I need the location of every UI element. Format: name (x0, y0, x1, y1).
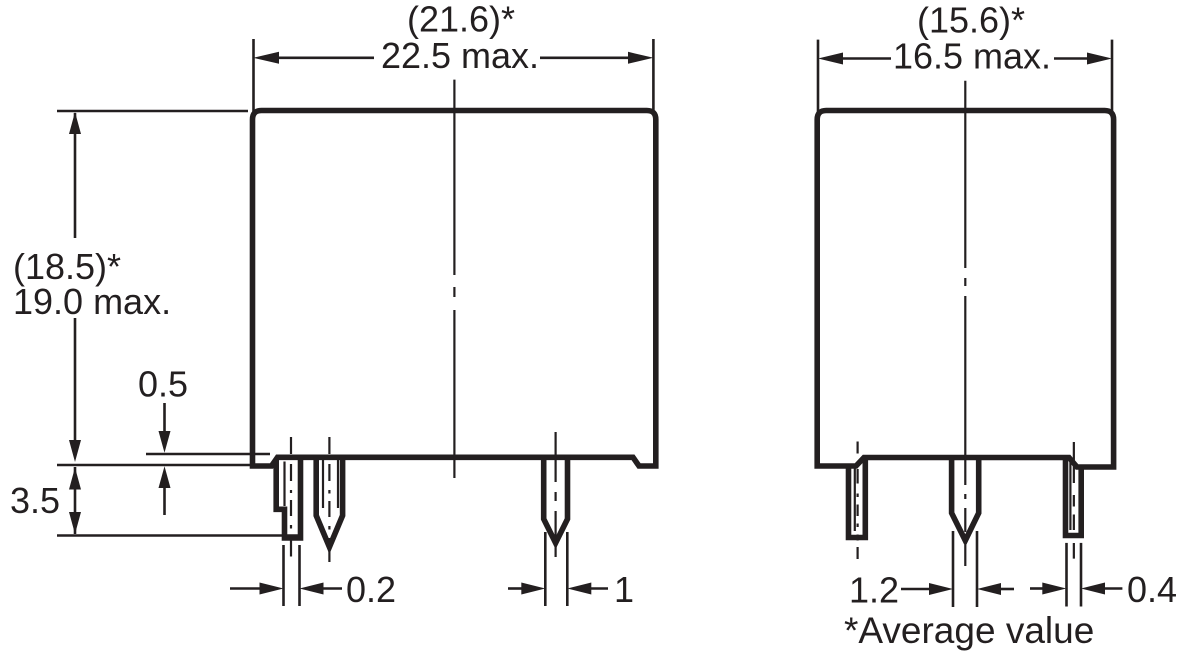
svg-text:1.2: 1.2 (849, 570, 899, 611)
svg-text:22.5 max.: 22.5 max. (381, 35, 539, 76)
svg-text:3.5: 3.5 (10, 480, 60, 521)
svg-text:(21.6)*: (21.6)* (407, 0, 515, 40)
svg-text:(15.6)*: (15.6)* (917, 0, 1025, 41)
svg-text:0.4: 0.4 (1127, 569, 1177, 610)
svg-text:19.0 max.: 19.0 max. (13, 281, 171, 322)
svg-text:16.5 max.: 16.5 max. (893, 36, 1051, 77)
svg-text:1: 1 (614, 569, 634, 610)
svg-text:0.5: 0.5 (138, 364, 188, 405)
svg-text:*Average value: *Average value (844, 610, 1094, 651)
svg-text:0.2: 0.2 (346, 569, 396, 610)
